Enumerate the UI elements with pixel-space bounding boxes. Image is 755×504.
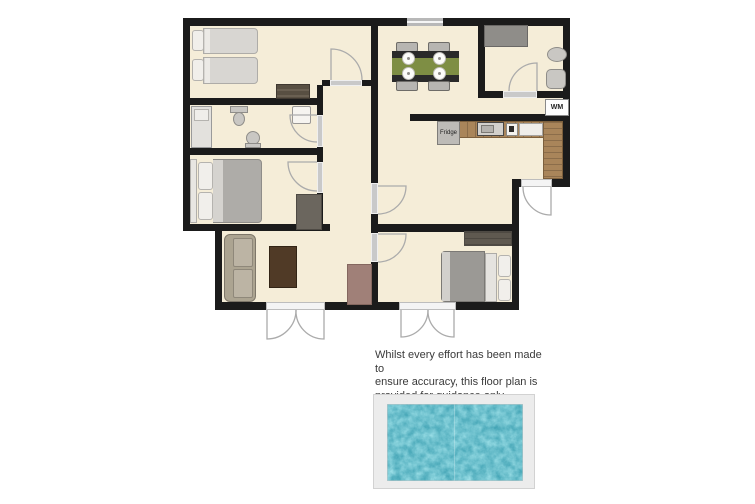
french-door-threshold	[399, 302, 456, 310]
wall	[478, 91, 503, 98]
floor-plan-page: WM Fridge Whilst every effort ha	[0, 0, 755, 504]
french-door-arc	[401, 310, 428, 337]
bed-fold	[205, 29, 210, 53]
dining-chair	[428, 81, 450, 91]
appliance	[519, 123, 543, 136]
disclaimer-line: ensure accuracy, this floor plan is	[375, 376, 550, 390]
wall	[322, 80, 330, 86]
single-bed	[203, 57, 258, 84]
basin	[547, 47, 567, 62]
dining-chair	[396, 81, 418, 91]
sofa-cushion	[233, 238, 253, 267]
plate	[433, 67, 446, 80]
toilet	[546, 69, 566, 89]
door-threshold	[521, 179, 552, 187]
washing-machine: WM	[545, 99, 569, 116]
single-bed	[203, 28, 258, 54]
pillow	[498, 255, 511, 277]
door-arc	[523, 187, 551, 215]
bed-fold	[442, 252, 450, 301]
door-threshold	[371, 233, 378, 262]
hob-tap	[509, 126, 514, 132]
coffee-table	[269, 246, 297, 288]
pool-water	[387, 404, 523, 481]
pool-water-texture	[387, 404, 523, 481]
headboard	[190, 159, 197, 223]
fridge: Fridge	[437, 121, 460, 145]
wall	[371, 262, 378, 302]
bidet-base	[245, 143, 261, 148]
worktop	[543, 121, 563, 179]
wall	[215, 224, 222, 310]
wall	[552, 179, 570, 187]
plate	[402, 67, 415, 80]
wardrobe	[464, 231, 512, 246]
wall	[183, 18, 190, 231]
plate	[402, 52, 415, 65]
blanket-roll	[485, 253, 497, 302]
wardrobe	[296, 194, 322, 230]
wall	[362, 80, 371, 86]
door-threshold	[371, 183, 378, 214]
toilet-bowl	[233, 112, 245, 126]
door-threshold	[317, 162, 323, 193]
wall	[183, 148, 323, 155]
shower-enclosure	[484, 25, 528, 47]
sideboard	[347, 264, 372, 305]
wall	[215, 302, 266, 310]
pillow	[198, 192, 213, 220]
bed-fold	[213, 160, 223, 222]
french-door-threshold	[266, 302, 325, 310]
wall	[456, 302, 519, 310]
wall	[512, 179, 519, 310]
wall	[537, 91, 570, 98]
sink-bowl	[481, 125, 494, 133]
pillow	[192, 30, 204, 51]
plate	[433, 52, 446, 65]
washing-machine-label: WM	[551, 104, 563, 111]
door-threshold	[317, 115, 323, 147]
wall	[371, 25, 378, 183]
french-door-arc	[296, 310, 324, 339]
sofa-cushion	[233, 269, 253, 298]
disclaimer-line: Whilst every effort has been made to	[375, 349, 550, 376]
wall	[317, 85, 323, 115]
wall	[317, 147, 323, 162]
wall	[183, 98, 323, 105]
wall	[410, 114, 565, 121]
french-door-arc	[267, 310, 296, 339]
bed-fold	[205, 58, 210, 83]
door-threshold	[330, 80, 362, 86]
french-door-arc	[428, 310, 454, 337]
pillow	[498, 279, 511, 301]
dresser	[276, 84, 310, 99]
wall	[371, 214, 378, 233]
door-threshold	[503, 91, 537, 98]
pillow	[192, 59, 204, 81]
swimming-pool	[373, 394, 535, 489]
pillow	[198, 162, 213, 190]
basin	[292, 106, 311, 124]
shower-tray	[194, 109, 209, 121]
window	[407, 18, 443, 26]
fridge-label: Fridge	[440, 130, 457, 136]
